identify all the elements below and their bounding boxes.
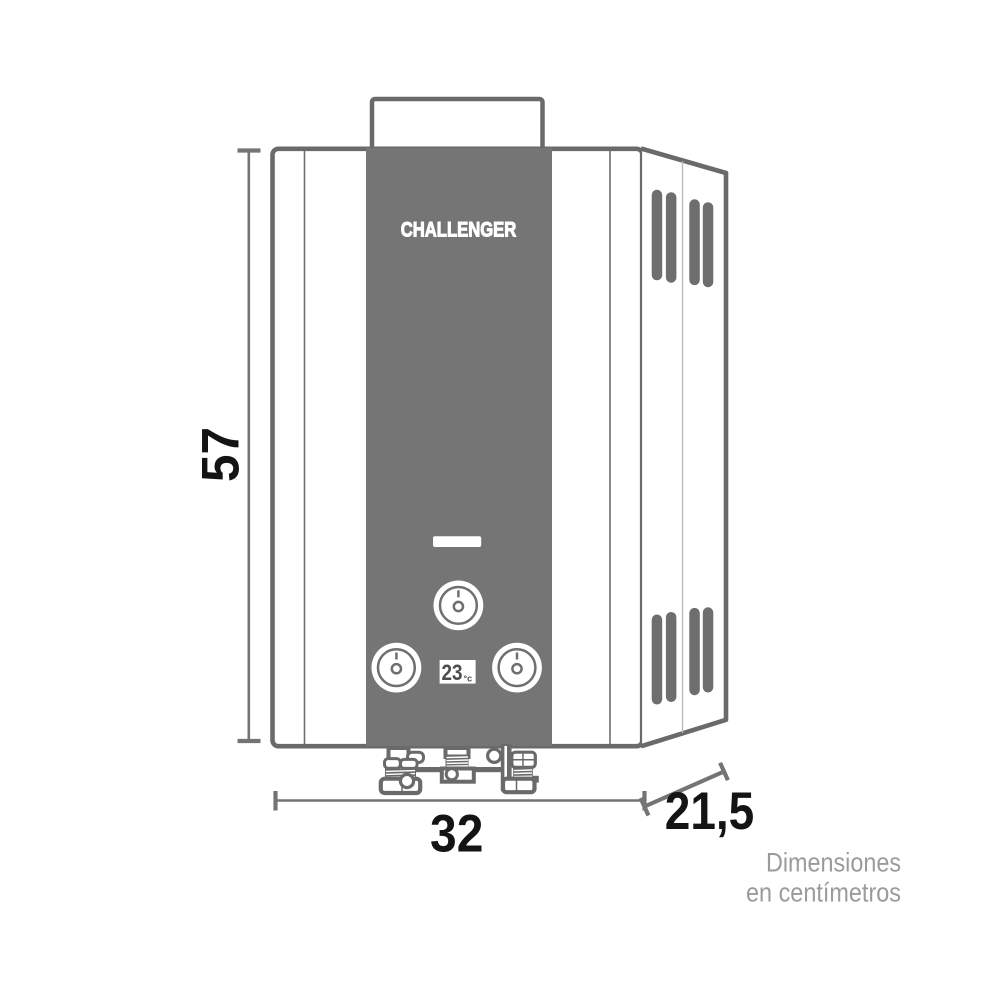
svg-text:21,5: 21,5: [665, 782, 755, 841]
svg-text:57: 57: [192, 427, 251, 482]
svg-text:CHALLENGER: CHALLENGER: [401, 218, 517, 242]
svg-text:23: 23: [442, 660, 463, 685]
svg-text:32: 32: [430, 805, 483, 864]
svg-text:Dimensiones: Dimensiones: [766, 848, 901, 878]
svg-text:°c: °c: [464, 674, 473, 684]
svg-text:en centímetros: en centímetros: [746, 878, 901, 908]
